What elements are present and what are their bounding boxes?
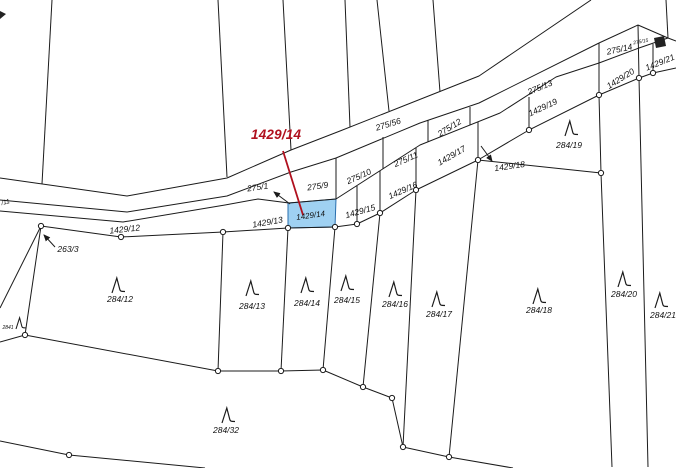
vertex-marker: [360, 384, 365, 389]
parcel-label-275-1: 275/1: [245, 181, 269, 194]
parcel-boundary-bottom-boundary: [0, 335, 513, 468]
vertex-marker: [278, 368, 283, 373]
parcel-boundary-line-639: [638, 25, 648, 467]
edge-mark-topleft: [0, 11, 6, 19]
parcel-boundary-top-line-6: [433, 0, 440, 92]
tree-icon: [655, 293, 668, 308]
parcel-label-275-56: 275/56: [373, 115, 402, 133]
parcel-boundary-top-right-vert: [666, 0, 668, 38]
vertex-marker: [650, 70, 655, 75]
tree-icon: [16, 318, 26, 329]
vertex-marker: [636, 75, 641, 80]
parcel-boundary-strip-top: [0, 38, 668, 222]
parcel-label-275-10: 275/10: [344, 166, 373, 186]
vertex-marker: [526, 127, 531, 132]
vertex-marker: [446, 454, 451, 459]
highlight-callout-label: 1429/14: [251, 127, 301, 142]
tree-icon: [222, 408, 235, 423]
building-symbol: [654, 36, 666, 48]
vertex-marker: [118, 234, 123, 239]
tree-icon: [301, 278, 314, 293]
tree-icon: [565, 121, 578, 136]
parcel-label-284-12: 284/12: [106, 294, 133, 304]
tree-icon: [533, 289, 546, 304]
vertex-marker: [598, 170, 603, 175]
parcel-label-275-9: 275/9: [305, 180, 329, 193]
vertex-marker: [215, 368, 220, 373]
parcel-label-275-14: 275/14: [605, 41, 634, 56]
vertex-marker: [332, 224, 337, 229]
parcel-label-1429-19: 1429/19: [527, 96, 559, 118]
vertex-marker: [22, 332, 27, 337]
parcel-boundary-top-line-2: [218, 0, 227, 177]
cadastral-map: 275/56275/1275/9275/10275/11275/12275/13…: [0, 0, 676, 468]
parcel-label-284-32: 284/32: [212, 425, 239, 435]
parcel-boundary-top-right-ext: [668, 38, 676, 41]
parcel-boundary-line-599: [599, 43, 612, 467]
parcel-label-1429-17: 1429/17: [436, 143, 468, 167]
parcel-label-284-15: 284/15: [333, 295, 360, 305]
parcel-label-284-20: 284/20: [610, 289, 637, 299]
parcel-label-1429-18: 1429/18: [494, 159, 526, 173]
parcel-label-2841: 2841: [1, 325, 13, 331]
vertex-marker: [389, 395, 394, 400]
parcel-boundary-bnd-284-15-16: [363, 213, 380, 387]
arrow-263-3: [44, 235, 55, 247]
vertex-marker: [38, 223, 43, 228]
parcel-label-284-17: 284/17: [425, 309, 452, 319]
tree-icon: [341, 276, 354, 291]
parcel-boundary-bnd-284-16-17: [403, 190, 416, 447]
vertex-marker: [66, 452, 71, 457]
parcel-boundary-sw-boundary: [0, 441, 205, 468]
parcel-label-284-18: 284/18: [525, 305, 552, 315]
parcel-boundary-bnd-284-12-13: [218, 232, 223, 371]
tree-icon: [618, 272, 631, 287]
parcel-label-284-16: 284/16: [381, 299, 408, 309]
tree-icon: [246, 281, 259, 296]
tree-icon: [112, 278, 125, 293]
vertex-marker: [354, 221, 359, 226]
parcel-label-284-13: 284/13: [238, 301, 265, 311]
parcel-label-263-3: 263/3: [56, 244, 79, 254]
parcel-boundary-top-line-1: [42, 0, 52, 184]
parcel-boundary-top-line-5: [377, 0, 389, 111]
parcel-label--11: /11: [0, 198, 11, 207]
parcel-label-275-12: 275/12: [435, 116, 463, 139]
tree-icon: [432, 292, 445, 307]
vertex-marker: [596, 92, 601, 97]
vertex-marker: [285, 225, 290, 230]
parcel-boundary-parcel275-14-ne: [638, 25, 668, 38]
arrow-1429-18: [481, 146, 492, 161]
vertex-marker: [220, 229, 225, 234]
parcel-label-284-21: 284/21: [649, 310, 676, 320]
parcel-boundary-bnd-284-17-18: [449, 160, 478, 457]
vertex-marker: [377, 210, 382, 215]
parcel-label-284-19: 284/19: [555, 140, 582, 150]
parcel-label-1429-13: 1429/13: [251, 214, 283, 229]
cadastral-map-view: 275/56275/1275/9275/10275/11275/12275/13…: [0, 0, 676, 468]
parcel-label-275-11: 275/11: [391, 149, 419, 169]
vertex-marker: [475, 157, 480, 162]
parcel-boundary-top-line-4: [345, 0, 350, 127]
vertex-marker: [320, 367, 325, 372]
vertex-marker: [400, 444, 405, 449]
parcel-label-275-13: 275/13: [525, 78, 554, 97]
tree-icon: [389, 282, 402, 297]
parcel-boundary-bnd-284-13-14: [281, 228, 288, 371]
parcel-label-1429-12: 1429/12: [109, 222, 141, 235]
parcel-label-284-14: 284/14: [293, 298, 320, 308]
parcel-label-1429-20: 1429/20: [605, 66, 637, 91]
